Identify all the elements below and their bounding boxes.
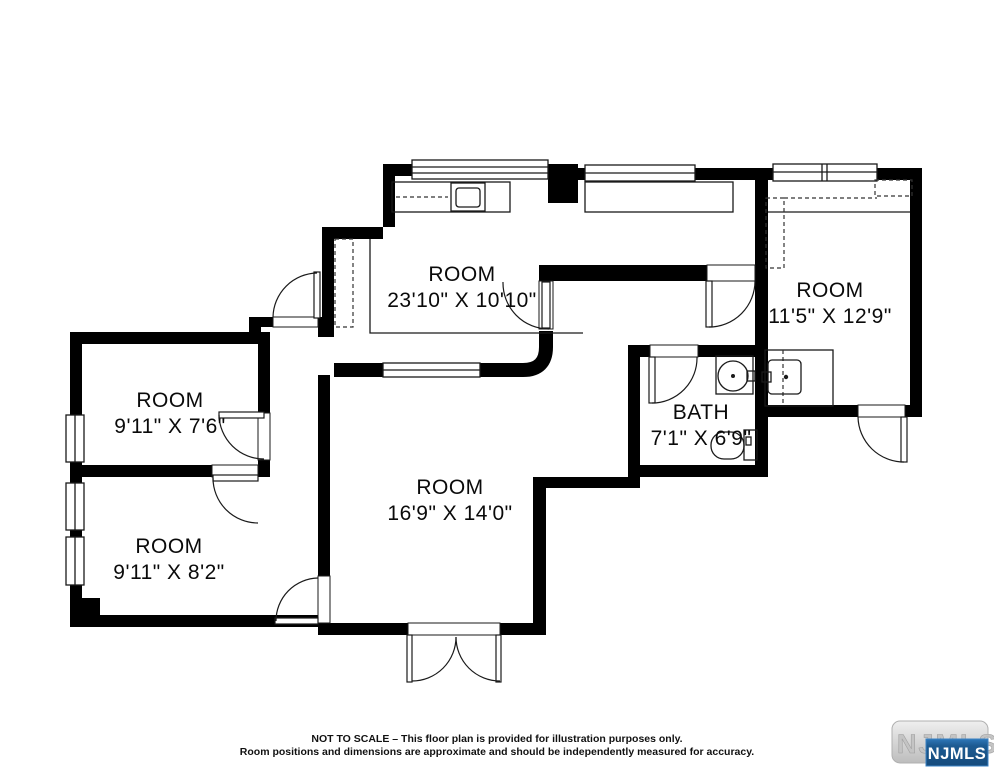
window: [585, 165, 695, 181]
wall-segment: [322, 227, 334, 327]
window: [412, 160, 548, 179]
wall-segment: [318, 623, 408, 635]
room-labels: ROOM 23'10" X 10'10" ROOM 11'5" X 12'9" …: [113, 263, 892, 584]
wall-segment: [70, 598, 100, 627]
double-door-patio: [407, 623, 501, 682]
wall-rounded-corner: [480, 331, 546, 370]
vanity-sink: [762, 350, 833, 406]
door-top-room: [273, 272, 320, 327]
door-lower-left-room: [212, 465, 258, 523]
kitchen-counter: [585, 182, 733, 212]
room-label: BATH: [673, 401, 729, 424]
window: [383, 363, 480, 377]
disclaimer-line1: NOT TO SCALE – This floor plan is provid…: [311, 733, 682, 745]
door-bath: [649, 345, 698, 403]
wall-segment: [334, 363, 383, 377]
refrigerator-outline: [335, 239, 353, 327]
room-dims: 7'1" X 6'9": [651, 427, 752, 450]
kitchen-sink-basin: [456, 188, 480, 207]
wall-segment: [905, 405, 922, 417]
wall-segment: [698, 345, 755, 357]
wall-segment: [70, 462, 82, 483]
wall-segment: [82, 465, 212, 477]
room-label: ROOM: [796, 279, 863, 302]
room-label: ROOM: [136, 389, 203, 412]
wall-segment: [533, 477, 640, 488]
wall-segment: [258, 460, 270, 477]
wall-segment: [318, 375, 330, 578]
wall-segment: [258, 332, 270, 413]
closet-outline: [766, 198, 784, 268]
wall-segment: [628, 345, 640, 477]
disclaimer: NOT TO SCALE – This floor plan is provid…: [240, 733, 755, 758]
closet-outline: [875, 180, 912, 196]
wall-segment: [70, 332, 253, 344]
wall-segment: [768, 405, 858, 417]
njmls-logo: NJMLS NJMLS: [892, 721, 994, 766]
room-label: ROOM: [135, 535, 202, 558]
room-label: ROOM: [428, 263, 495, 286]
window: [773, 164, 877, 181]
room-dims: 23'10" X 10'10": [387, 289, 537, 312]
disclaimer-line2: Room positions and dimensions are approx…: [240, 746, 755, 758]
wall-segment: [70, 530, 82, 537]
wall-segment: [70, 585, 82, 598]
logo-badge-text: NJMLS: [928, 745, 986, 763]
wall-segment: [383, 164, 395, 227]
window: [66, 483, 84, 530]
door-entry: [858, 405, 907, 462]
door-upper-left-room: [219, 412, 270, 460]
door-foyer-top: [706, 265, 755, 327]
room-dims: 16'9" X 14'0": [387, 502, 512, 525]
wall-segment: [910, 168, 922, 417]
window: [66, 537, 84, 585]
room-label: ROOM: [416, 476, 483, 499]
floorplan-canvas: ROOM 23'10" X 10'10" ROOM 11'5" X 12'9" …: [0, 0, 994, 768]
room-dims: 9'11" X 7'6": [114, 415, 225, 438]
wall-segment: [500, 623, 540, 635]
wall-segment: [548, 164, 578, 203]
window: [66, 415, 84, 462]
room-dims: 9'11" X 8'2": [113, 561, 224, 584]
wall-segment: [533, 477, 546, 635]
wall-segment: [70, 332, 82, 415]
wall-segment: [628, 465, 768, 477]
wall-segment: [318, 317, 334, 337]
room-dims: 11'5" X 12'9": [768, 305, 892, 328]
wall-segment: [539, 265, 707, 281]
bath-sink: [716, 356, 755, 394]
